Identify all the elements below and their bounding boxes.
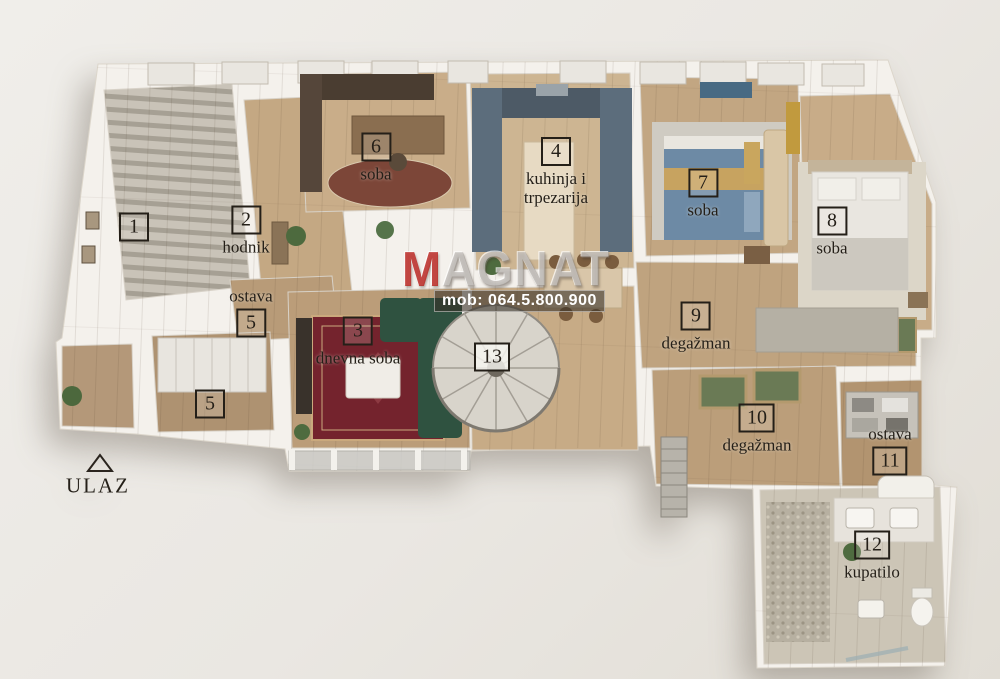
room-label-7: 7 soba	[687, 169, 718, 220]
room-label-12: 12 kupatilo	[844, 531, 900, 582]
room-number: 12	[854, 531, 890, 560]
desk-chair	[389, 153, 407, 171]
room-number: 11	[872, 447, 907, 476]
headboard	[764, 130, 788, 246]
room-name: kuhinja i trpezarija	[500, 169, 612, 207]
room-number: 4	[541, 137, 571, 166]
room-number: 6	[361, 133, 391, 162]
wall-art	[898, 318, 916, 352]
plant	[286, 226, 306, 246]
balcony-railing	[289, 449, 470, 470]
room-label-9: 9 degažman	[662, 302, 731, 353]
plant	[483, 257, 501, 275]
range-hood	[536, 84, 568, 96]
storage5-wardrobe	[158, 338, 266, 392]
room-label-10: 10 degažman	[723, 404, 792, 455]
wall-art	[754, 370, 800, 402]
room-label-11: 11 ostava	[868, 425, 911, 476]
room-number: 10	[739, 404, 775, 433]
tv-console	[296, 318, 312, 414]
room-name: soba	[360, 165, 391, 184]
nightstand	[908, 292, 928, 308]
bookshelf	[300, 74, 322, 192]
room-number: 5	[195, 390, 225, 419]
room-name: hodnik	[222, 238, 269, 257]
plant	[62, 386, 82, 406]
room-name: soba	[687, 201, 718, 220]
kitchen-cabinet	[472, 88, 502, 252]
room-label-3: 3 dnevna soba	[316, 317, 401, 368]
room-number: 8	[817, 207, 847, 236]
room-name: ostava	[868, 425, 911, 444]
plant	[376, 221, 394, 239]
room-label-5-upper: 5 ostava	[229, 287, 272, 338]
room-label-13: 13	[474, 343, 510, 372]
pillow	[744, 192, 760, 232]
chair	[577, 253, 591, 267]
room-label-2: 2 hodnik	[222, 206, 269, 257]
room-label-8: 8 soba	[816, 207, 847, 258]
radiator	[661, 437, 687, 517]
chair	[549, 255, 563, 269]
room-label-5-lower: 5	[195, 390, 225, 419]
room-label-6: 6 soba	[360, 133, 391, 184]
shower-pebble-floor	[766, 502, 830, 642]
curtain	[700, 82, 752, 98]
entrance-label: ULAZ	[66, 474, 130, 499]
pillow	[818, 178, 856, 200]
room-number: 9	[681, 302, 711, 331]
entrance-arrow-icon	[88, 455, 112, 471]
plant	[294, 424, 310, 440]
room-label-4: 4 kuhinja i trpezarija	[500, 137, 612, 207]
curtain	[786, 102, 800, 154]
room-number: 7	[688, 169, 718, 198]
room-number: 2	[231, 206, 261, 235]
room-name: degažman	[723, 436, 792, 455]
runner-rug	[756, 308, 898, 352]
toilet-tank	[912, 588, 932, 598]
pillow	[862, 178, 900, 200]
room-label-1: 1	[119, 213, 149, 242]
chair	[605, 255, 619, 269]
toilet	[911, 598, 933, 626]
room-number: 5	[236, 309, 266, 338]
room-number: 1	[119, 213, 149, 242]
room-name: degažman	[662, 334, 731, 353]
chair	[559, 307, 573, 321]
room-number: 3	[343, 317, 373, 346]
pillow	[744, 142, 760, 184]
small-sink	[858, 600, 884, 618]
sink	[846, 508, 874, 528]
room-name: kupatilo	[844, 563, 900, 582]
chair	[589, 309, 603, 323]
nightstand	[744, 246, 770, 264]
sink	[890, 508, 918, 528]
room-name: ostava	[229, 287, 272, 306]
room-name: soba	[816, 239, 847, 258]
dining-table	[544, 268, 622, 308]
floorplan-render: 1 2 hodnik 5 ostava 5 3 dnevna soba 6 so…	[0, 0, 1000, 679]
room-number: 13	[474, 343, 510, 372]
room-name: dnevna soba	[316, 349, 401, 368]
